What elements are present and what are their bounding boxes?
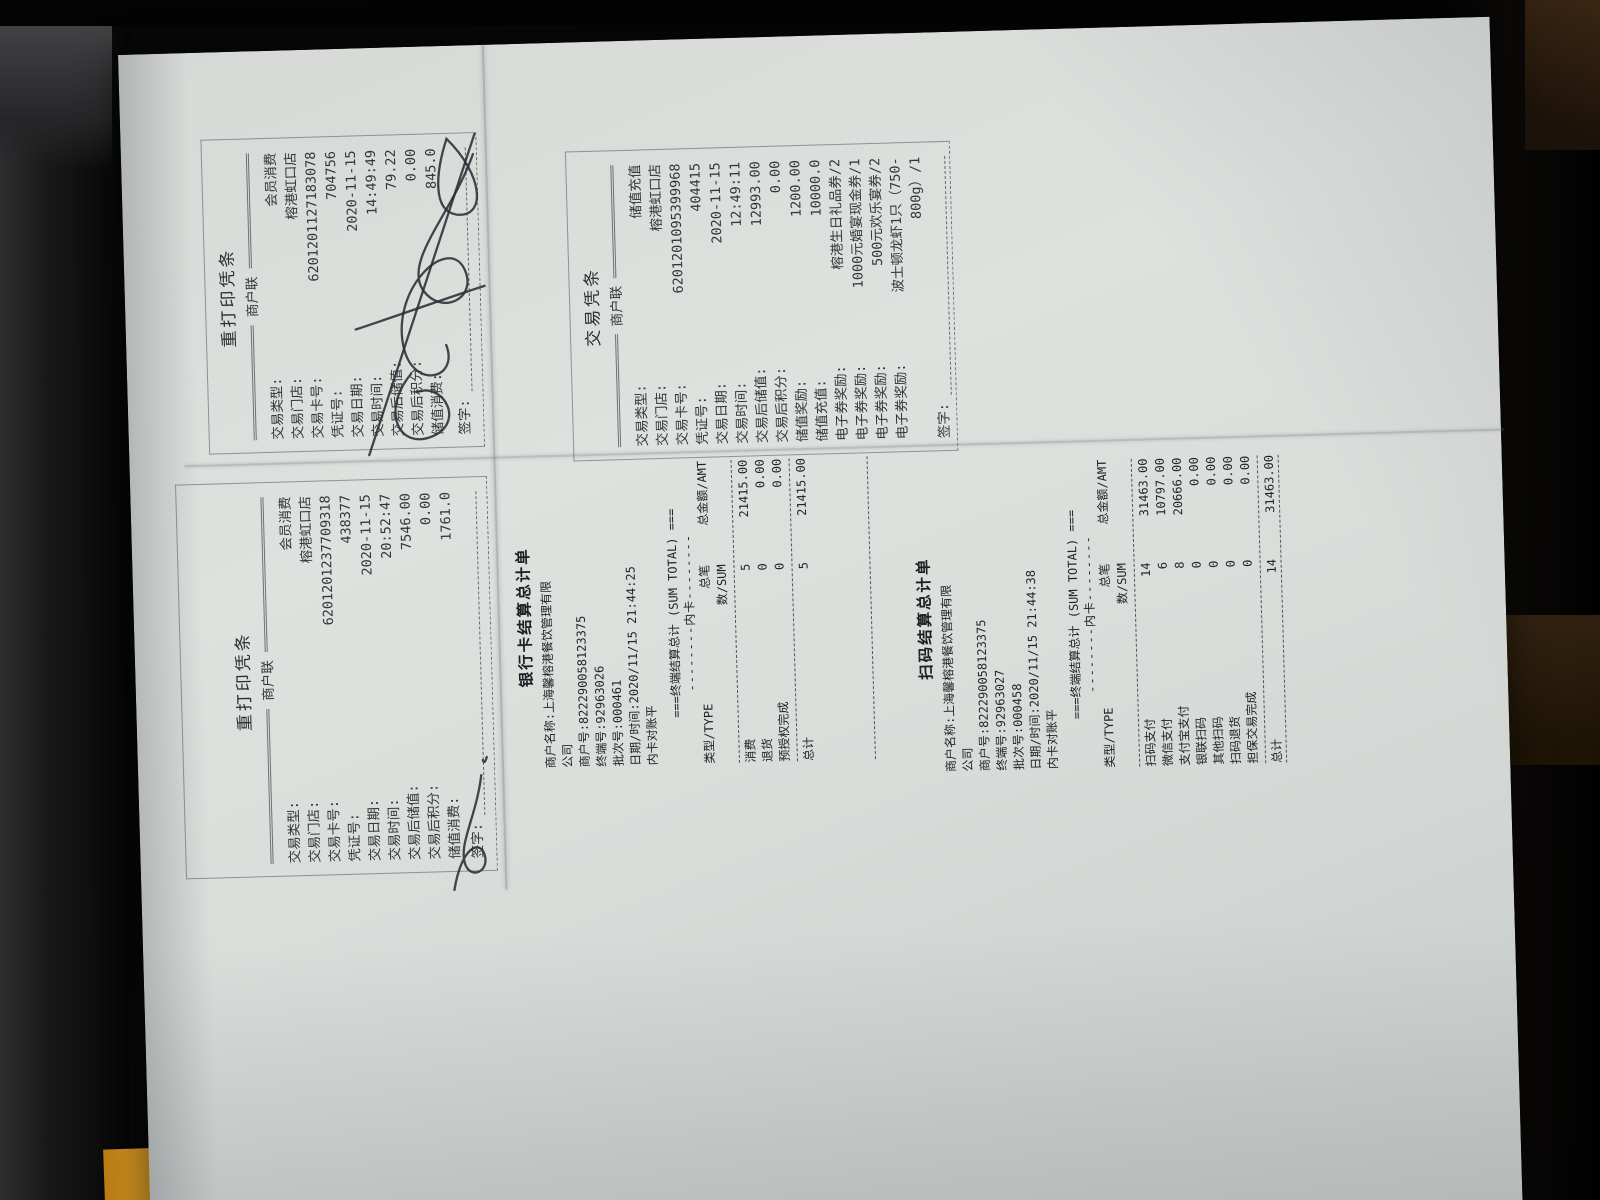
total-type: 总计	[797, 626, 818, 761]
field-value: 10000.0	[805, 159, 827, 216]
field-value: 404415	[685, 163, 706, 212]
field-label: 交易时间:	[731, 381, 753, 444]
field-value: 会员消费	[275, 496, 296, 551]
field-value: 波士顿龙虾1只（750-800g）/1	[885, 157, 930, 333]
field-value: 储值充值	[625, 164, 646, 219]
field-label: 交易类型:	[267, 377, 289, 440]
row-count: 0	[1223, 560, 1242, 624]
settlement-rows: 扫码支付 14 31463.00 微信支付 6 10797.00 支付宝支付 8…	[1135, 455, 1263, 766]
settlement-rows: 消费 5 21415.00 退货 0 0.00 预授权完成 0 0.00	[735, 459, 794, 763]
row-type: 预授权完成	[773, 626, 794, 761]
field-label: 交易后积分:	[771, 367, 793, 443]
merchant-info: 商户名称:上海馨榕港餐饮管理有限公司商户号:822290058123375终端号…	[535, 462, 662, 768]
wood-table-edge-mid	[1505, 615, 1600, 765]
col-amount: 总金额/AMT	[1094, 459, 1131, 564]
field-value: 榕港虹口店	[281, 152, 303, 220]
receipt-title: 扫码结算总计单	[909, 464, 940, 772]
signature-line	[929, 156, 952, 395]
receipt-bankcard-settlement: 银行卡结算总计单 商户名称:上海馨榕港餐饮管理有限公司商户号:822290058…	[504, 450, 885, 775]
copy-text: 商户联	[605, 286, 626, 327]
col-count: 总笔数/SUM	[696, 564, 732, 629]
background-left-shadow	[0, 0, 130, 1200]
copy-text: 商户联	[240, 276, 261, 317]
table-header: 类型/TYPE 总笔数/SUM 总金额/AMT	[694, 460, 736, 764]
handwritten-signature-small	[425, 750, 509, 912]
row-amount: 0.00	[1237, 455, 1257, 559]
field-label: 电子券奖励:	[831, 365, 853, 441]
field-value: 2020-11-15	[705, 162, 727, 244]
field-label: 凭证号:	[327, 389, 348, 438]
field-value: 0.00	[765, 160, 786, 193]
receipt-recharge: 交易凭条 商户联 交易类型: 储值充值 交易门店: 榕港虹口店 交易卡号:	[565, 141, 959, 462]
photo-of-receipts: 重打印凭条 商户联 交易类型: 会员消费 交易门店: 榕港虹口店 交易卡号:	[0, 0, 1600, 1200]
row-count: 5	[737, 563, 756, 627]
field-value: 438377	[335, 495, 356, 544]
row-count: 0	[771, 562, 790, 626]
total-count: 14	[1264, 559, 1283, 623]
row-count: 0	[1206, 560, 1225, 624]
row-count: 0	[1240, 559, 1259, 623]
col-amount: 总金额/AMT	[694, 460, 731, 565]
field-label: 交易日期:	[711, 382, 733, 445]
row-count: 0	[754, 563, 773, 627]
field-label: 交易门店:	[287, 377, 309, 440]
field-value: 704756	[321, 151, 342, 200]
field-value: 会员消费	[261, 152, 282, 207]
field-value: 1761.0	[435, 492, 456, 541]
copy-text: 商户联	[256, 660, 277, 701]
handwritten-signature-large	[342, 120, 492, 469]
wood-table-edge-top	[1525, 0, 1600, 150]
field-label: 交易卡号:	[307, 376, 329, 439]
field-value: 12993.00	[745, 161, 767, 227]
field-label: 交易后储值:	[403, 784, 425, 860]
field-value: 0.00	[415, 492, 436, 525]
paper-sheet: 重打印凭条 商户联 交易类型: 会员消费 交易门店: 榕港虹口店 交易卡号:	[118, 17, 1523, 1200]
field-value: 榕港虹口店	[295, 496, 317, 564]
receipt-qrcode-settlement: 扫码结算总计单 商户名称:上海馨榕港餐饮管理有限公司商户号:8222900581…	[905, 449, 1272, 779]
col-count: 总笔数/SUM	[1097, 563, 1133, 628]
field-label: 电子券奖励:	[891, 363, 933, 440]
field-label: 交易类型:	[284, 801, 306, 864]
row-count: 0	[1189, 561, 1208, 625]
field-label: 凭证号:	[692, 396, 713, 445]
row-amount: 0.00	[769, 459, 789, 563]
field-label: 储值充值:	[811, 379, 833, 442]
field-label: 交易卡号:	[671, 383, 693, 446]
field-label: 储值奖励:	[791, 380, 813, 443]
total-count: 5	[795, 562, 814, 626]
field-label: 凭证号:	[344, 813, 365, 862]
field-label: 交易后储值:	[751, 367, 773, 443]
receipt-title: 银行卡结算总计单	[509, 466, 539, 769]
field-label: 交易门店:	[651, 384, 673, 447]
col-type: 类型/TYPE	[698, 628, 736, 764]
field-value: 12:49:11	[725, 162, 747, 228]
field-label: 电子券奖励:	[871, 364, 893, 440]
field-label: 交易时间:	[384, 798, 406, 861]
field-value: 榕港虹口店	[645, 164, 667, 232]
field-value: 20:52:47	[375, 493, 397, 559]
sign-label: 签字:	[932, 403, 953, 439]
receipt-end-divider	[866, 456, 875, 759]
row-count: 14	[1138, 562, 1157, 626]
field-value: 7546.00	[395, 493, 417, 550]
field-list: 交易类型: 储值充值 交易门店: 榕港虹口店 交易卡号: 62012010953…	[625, 157, 933, 447]
merchant-info: 商户名称:上海馨榕港餐饮管理有限公司商户号:822290058123375终端号…	[935, 461, 1063, 772]
total-amount: 21415.00	[793, 458, 813, 562]
table-header: 类型/TYPE 总笔数/SUM 总金额/AMT	[1094, 459, 1137, 768]
row-count: 6	[1155, 562, 1174, 626]
row-type: 担保交易完成	[1241, 623, 1262, 763]
row-count: 8	[1172, 561, 1191, 625]
field-label: 交易卡号:	[324, 800, 346, 863]
field-label: 交易类型:	[631, 384, 653, 447]
col-type: 类型/TYPE	[1098, 627, 1136, 768]
field-value: 2020-11-15	[355, 494, 377, 576]
field-label: 交易门店:	[304, 800, 326, 863]
field-value: 1200.00	[785, 160, 807, 217]
field-label: 交易日期:	[364, 799, 386, 862]
field-label: 电子券奖励:	[851, 364, 873, 440]
